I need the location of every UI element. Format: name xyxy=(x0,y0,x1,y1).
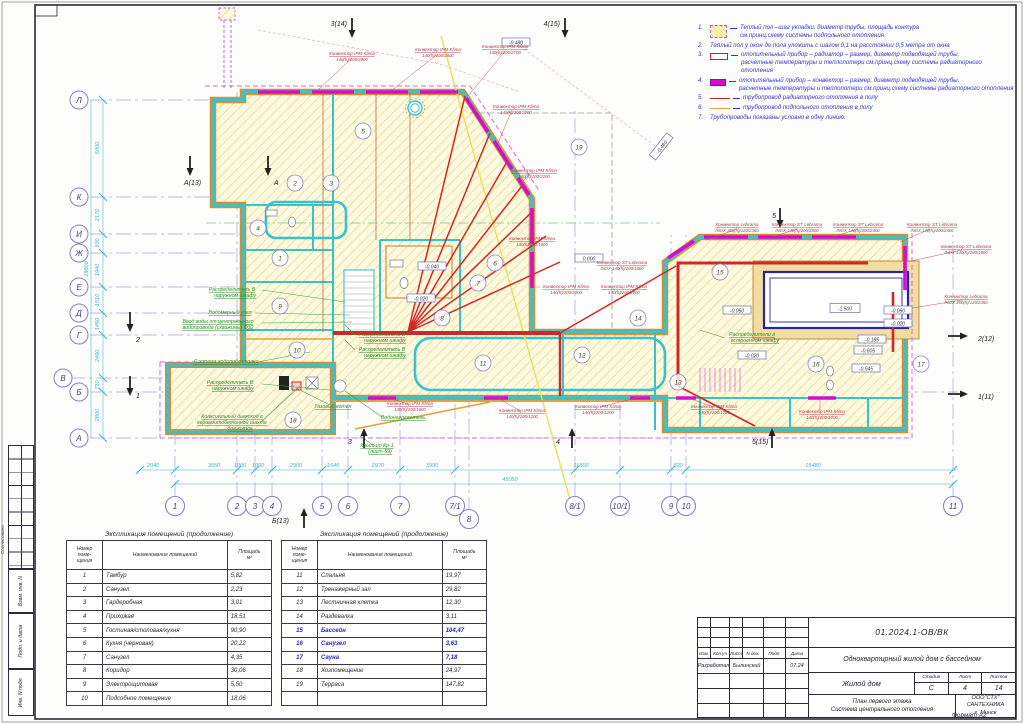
object-stage-row: Жилой дом Стадия С Лист 4 Листов 14 xyxy=(809,673,1015,695)
legend-text: отопительный прибор – радиатор – размер,… xyxy=(741,51,1014,74)
room-number: 7 xyxy=(476,281,480,288)
table-row-empty xyxy=(282,692,487,706)
dim-value: 820 xyxy=(673,463,683,469)
sheets-label: Листов xyxy=(982,673,1015,683)
annotation: керамзитобетонной шахте xyxy=(197,419,267,426)
section-label: 2(12) xyxy=(977,336,994,343)
sheet-label: Лист xyxy=(949,673,982,683)
signature-row xyxy=(698,674,808,689)
company-line2: САНТЕХНИКА xyxy=(967,702,1005,709)
room-number: 18 xyxy=(289,418,297,425)
signature-row: Разработал Былинский 07.24 xyxy=(698,659,808,674)
room-schedule-table-2: Экспликация помещений (продолжение) Номе… xyxy=(281,531,487,706)
convector-label: Конвектор IPM Klima xyxy=(482,44,528,49)
axis-label: А xyxy=(75,434,81,443)
dim-value: 1540 xyxy=(327,463,340,469)
side-stamp-repl-inv: Взам. инв. N xyxy=(8,569,34,613)
axis-label: Л xyxy=(75,96,82,105)
sheet-column: Лист 4 xyxy=(949,673,983,694)
gas-boiler-symbol xyxy=(279,376,289,390)
section-label: 1 xyxy=(136,393,140,400)
drawing-title-line2: Система центрального отопления xyxy=(831,706,933,714)
axis-label: 10 xyxy=(682,502,691,511)
legend-text: отопительный прибор – конвектор – размер… xyxy=(739,77,1013,93)
convector-label: Конвектор IPM Klima xyxy=(601,284,647,289)
dim-value: 3550 xyxy=(208,463,221,469)
dim-total: 19800 xyxy=(84,260,90,276)
section-label: А xyxy=(273,180,279,187)
convector-label: Конвектор IPM Klima xyxy=(509,236,555,241)
col-header: Площадь м² xyxy=(442,541,486,570)
section-label: 5(15) xyxy=(752,439,768,446)
axis-label: 7 xyxy=(398,502,403,511)
convector-label: Конвектор IPM Klima xyxy=(387,401,433,406)
dim-value: 3990 xyxy=(426,463,439,469)
room-number: 15 xyxy=(716,270,724,277)
axis-label: 8 xyxy=(467,515,472,524)
revision-row xyxy=(698,618,808,628)
legend-item: 4. отопительный прибор – конвектор – раз… xyxy=(698,77,1014,93)
elevation-value: -0.050 xyxy=(891,309,905,315)
revision-header-row: Изм. Кол.уч Лист N док. Подп. Дата xyxy=(698,648,808,659)
divider xyxy=(21,446,22,568)
room-number: 2 xyxy=(292,181,297,188)
convector-label: Конвектор ST Lebrama xyxy=(772,222,823,227)
elevation-value: -0.020 xyxy=(414,297,428,303)
col-header: Наименование помещений xyxy=(318,541,443,570)
legend-leader xyxy=(733,108,740,109)
elevation-value: -0.040 xyxy=(425,265,439,271)
room-number: 14 xyxy=(634,316,642,323)
signature-row xyxy=(698,689,808,704)
room-number: 4 xyxy=(256,226,260,233)
annotation: Коаксиальный дымоход в xyxy=(201,413,263,420)
convector-spec: 140(h)/200/1200 xyxy=(806,415,838,420)
legend-text: трубопровод подпольного отопления в полу xyxy=(743,104,873,112)
company-line1: ООО"СТХ" xyxy=(971,695,999,702)
table-row: 6Кухня (черновая)20,22 xyxy=(67,637,272,651)
legend-item: 5. трубопровод радиаторного отопления в … xyxy=(698,94,1014,102)
table-row: 8Коридор30,06 xyxy=(67,665,272,679)
drawing-sheet: 5800 2170 930 1940 1510 1450 2490 710 28… xyxy=(0,0,1024,724)
room-number: 8 xyxy=(440,316,444,323)
convector-label: Конвектор IPM Klima xyxy=(543,284,589,289)
convector-label: Конвектор IPM Klima xyxy=(799,409,845,414)
legend-number: 2. xyxy=(698,42,707,50)
legend-leader xyxy=(731,55,738,56)
convector-label: Конвектор IPM Klima xyxy=(575,404,621,409)
legend-number: 3. xyxy=(698,51,707,59)
sheets-column: Листов 14 xyxy=(982,673,1015,694)
convector-label: Конвектор ST Lebrama xyxy=(597,260,648,265)
convector-spec: 140(h)/200/1200 xyxy=(698,410,730,415)
room-number: 3 xyxy=(329,181,333,188)
convector-spec: INOX 140(h)/200/2400 xyxy=(910,228,954,233)
legend-number: 6. xyxy=(698,104,707,112)
floor-heating-swatch-icon xyxy=(710,25,727,38)
dim-value: 2170 xyxy=(95,208,101,222)
convector-label: Конвектор ST Lebrama xyxy=(833,222,884,227)
section-label: 3(14) xyxy=(331,21,347,28)
elevation-value: -0.020 xyxy=(891,322,905,328)
legend-item: 7. Трубопроводы показаны условно в одну … xyxy=(698,114,1014,122)
axis-label: 11 xyxy=(949,502,957,511)
section-label: 4 xyxy=(556,439,560,446)
notes-legend: 1. Теплый пол –шаг укладки, диаметр труб… xyxy=(698,24,1014,124)
radiator-swatch-icon xyxy=(710,53,728,60)
section-label: 5 xyxy=(772,213,776,220)
legend-text: Теплый пол у окон до пола уложить с шаго… xyxy=(710,42,950,50)
table-header-row: Номер поме- щения Наименование помещений… xyxy=(67,541,272,570)
elevation-value: -0.050 xyxy=(730,309,744,315)
dim-value: 1000 xyxy=(234,463,247,469)
annotation: Система водоподготовки xyxy=(194,359,259,365)
section-label: Б(13) xyxy=(272,518,289,525)
table-title: Экспликация помещений (продолжение) xyxy=(281,531,487,538)
table-row: 14Раздевалка3,11 xyxy=(282,610,487,624)
convector-spec: 140(h)/200/2000 xyxy=(608,290,640,295)
dim-total: 45050 xyxy=(502,477,518,483)
table-title: Экспликация помещений (продолжение) xyxy=(66,531,272,538)
table-row: 5Гостиная/столовая/кухня90,90 xyxy=(67,624,272,638)
col-label: Изм. xyxy=(698,648,711,659)
table-row: 18Хозпомещение24,97 xyxy=(282,665,487,679)
section-label: 4(15) xyxy=(544,21,560,28)
side-stamp-sign-date: Подп. и дата xyxy=(8,613,34,669)
stage-value: С xyxy=(915,683,948,694)
dim-value: 2970 xyxy=(371,463,385,469)
legend-number: 1. xyxy=(698,24,707,32)
legend-leader xyxy=(733,98,740,99)
dim-value: 1450 xyxy=(95,317,101,330)
room-number: 5 xyxy=(361,129,365,136)
annotation: наружном шкафу xyxy=(364,353,406,359)
table-row: 12Тренажерный зал29,82 xyxy=(282,583,487,597)
table-row: 13Лестничная клетка12,30 xyxy=(282,597,487,611)
annotation: встроенном шкафу xyxy=(731,338,780,344)
stage-column: Стадия С xyxy=(915,673,949,694)
axis-label: 2 xyxy=(234,502,240,511)
convector-label: Конвектор ST Lebrama xyxy=(907,222,958,227)
table-row: 19Терраса147,82 xyxy=(282,678,487,692)
legend-number: 7. xyxy=(698,114,707,122)
format-label: Формат А2 xyxy=(952,712,986,719)
axis-label: 7/1 xyxy=(449,502,460,511)
dim-value: 2900 xyxy=(289,463,303,469)
annotation: Водонагреватель xyxy=(381,415,426,421)
col-header: Наименование помещений xyxy=(103,541,228,570)
convector-spec: 140(h)/200/2200 xyxy=(518,174,550,179)
table-row: 9Электрощитовая5,50 xyxy=(67,678,272,692)
convector-spec: INOX 140(h)/200/1800 xyxy=(600,266,644,271)
room-number: 11 xyxy=(480,361,487,368)
revision-row xyxy=(698,628,808,638)
signature-row xyxy=(698,704,808,717)
section-label: 2 xyxy=(135,337,140,344)
revision-row xyxy=(698,638,808,648)
legend-number: 5. xyxy=(698,94,707,102)
section-label: 1(11) xyxy=(978,394,994,401)
stage-label: Стадия xyxy=(915,673,948,683)
side-stamp-inv-no: Инв. N подл. xyxy=(8,669,34,716)
convector-label: Конвектор ST Lebrama xyxy=(941,244,992,249)
dim-value: 1000 xyxy=(252,463,265,469)
radiator-pipe-swatch-icon xyxy=(710,98,730,99)
table-row: 11Спальня19,97 xyxy=(282,570,487,584)
convector-spec: 140(h)/200/1000 xyxy=(516,242,548,247)
axis-label: Д xyxy=(75,309,82,318)
room-schedule-table-1: Экспликация помещений (продолжение) Номе… xyxy=(66,531,272,706)
col-label: Кол.уч xyxy=(711,648,730,659)
col-header: Номер поме- щения xyxy=(282,541,318,570)
dim-value: 2800 xyxy=(95,408,101,422)
elevation-value: -0.605 xyxy=(861,349,875,355)
convector-swatch-icon xyxy=(710,79,726,86)
col-label: Подп. xyxy=(764,648,786,659)
drawing-title: План первого этажа Система центрального … xyxy=(809,695,956,717)
section-label: А(13) xyxy=(183,180,201,187)
annotation: наружном шкафу xyxy=(364,338,406,344)
legend-text: трубопровод радиаторного отопления в пол… xyxy=(743,94,878,102)
table-row: 1Тамбур5,82 xyxy=(67,570,272,584)
legend-leader xyxy=(730,28,737,29)
dim-value: 710 xyxy=(95,379,101,389)
section-label: 3 xyxy=(348,439,352,446)
elevation-value: -0.020 xyxy=(745,354,759,360)
elevation-value: -0.945 xyxy=(859,367,873,373)
project-title: Одноквартирный жилой дом с бассейном xyxy=(809,648,1015,674)
table-row: 15Бассейн104,47 xyxy=(282,624,487,638)
title-block-main: 01.2024.1-ОВ/ВК Одноквартирный жилой дом… xyxy=(809,618,1015,717)
legend-item: 3. отопительный прибор – радиатор – разм… xyxy=(698,51,1014,74)
col-header: Площадь м² xyxy=(227,541,271,570)
annotation: (лист 59) xyxy=(368,449,392,455)
legend-leader xyxy=(729,81,736,82)
axis-label: Е xyxy=(76,283,82,292)
col-header: Номер поме- щения xyxy=(67,541,103,570)
role-label: Разработал xyxy=(698,659,730,674)
document-number: 01.2024.1-ОВ/ВК xyxy=(809,618,1015,648)
legend-text: Трубопроводы показаны условно в одну лин… xyxy=(710,114,845,122)
dim-value: 2490 xyxy=(95,349,101,363)
convector-spec: 140(h)/200/1200 xyxy=(582,410,614,415)
room-number: 6 xyxy=(493,261,497,268)
sheets-value: 14 xyxy=(982,683,1015,694)
convector-label: Конвектор IPM Klima xyxy=(493,104,539,109)
dim-value: 11800 xyxy=(573,463,589,469)
dim-value: 5800 xyxy=(95,141,101,154)
elevation-value: 0.000 xyxy=(583,257,596,263)
convector-spec: 140(h)/200/2700 xyxy=(500,110,532,115)
room-number: 13 xyxy=(674,380,682,387)
table-header-row: Номер поме- щения Наименование помещений… xyxy=(282,541,487,570)
room-number: 17 xyxy=(917,362,925,369)
table-row: 3Гардеробная3,01 xyxy=(67,597,272,611)
col-label: N док. xyxy=(743,648,764,659)
legend-number: 4. xyxy=(698,77,707,85)
convector-label: Конвектор IPM Klima xyxy=(499,408,545,413)
axis-label: 3 xyxy=(253,502,258,511)
convector-label: Конвектор IPM Klima xyxy=(691,404,737,409)
convector-spec: 140(h)/200/1200 xyxy=(506,414,538,419)
convector-spec: INOX 350(h)/120/2350 xyxy=(944,300,988,305)
elevation-value: -0.185 xyxy=(865,338,879,344)
axis-label: 8/1 xyxy=(569,502,580,511)
axis-label: И xyxy=(76,230,82,239)
title-block-revision-grid: Изм. Кол.уч Лист N док. Подп. Дата Разра… xyxy=(698,618,809,717)
convector-label: Конвектор Lebrama xyxy=(715,222,759,227)
room-number: 19 xyxy=(575,145,583,152)
floor-pipe-swatch-icon xyxy=(710,108,730,109)
axis-label: 5 xyxy=(320,502,325,511)
room-number: 9 xyxy=(278,304,282,311)
annotation: водопровода (скважины) Ф32 xyxy=(183,325,254,331)
dim-value: 15480 xyxy=(805,463,821,469)
legend-item: 1. Теплый пол –шаг укладки, диаметр труб… xyxy=(698,24,1014,40)
convector-spec: INOX 140(h)/200/2400 xyxy=(836,228,880,233)
room-number: 1 xyxy=(278,256,282,263)
room-number: 12 xyxy=(578,353,586,360)
table-row: 17Сауна7,18 xyxy=(282,651,487,665)
convector-spec: 140(h)/200/2700 xyxy=(489,50,521,55)
dim-value: 1940 xyxy=(95,263,101,276)
convector-spec: 140(h)/200/2800 xyxy=(422,53,454,58)
object-name: Жилой дом xyxy=(809,673,915,694)
dim-value: 930 xyxy=(95,237,101,247)
legend-item: 2. Теплый пол у окон до пола уложить с ш… xyxy=(698,42,1014,50)
axis-label: 4 xyxy=(270,502,275,511)
axis-label: Б xyxy=(76,388,81,397)
side-stamp-grid xyxy=(8,445,34,569)
convector-label: Конвектор IPM Klima xyxy=(329,51,375,56)
annotation: для котла xyxy=(227,426,252,432)
table-row: 4Прихожая18,51 xyxy=(67,610,272,624)
convector-spec: INOX 140(h)/200/1500 xyxy=(944,250,988,255)
legend-item: 6. трубопровод подпольного отопления в п… xyxy=(698,104,1014,112)
axis-label: Г xyxy=(77,331,82,340)
convector-spec: INOX 350(h)/120/2350 xyxy=(715,228,759,233)
axis-label: Ж xyxy=(74,249,83,258)
table-row: 10Подсобное помещение18,06 xyxy=(67,692,272,706)
axis-label: 1 xyxy=(173,502,177,511)
annotation: Водомерный узел xyxy=(208,309,251,316)
annotation: наружном шкафу xyxy=(212,386,254,392)
convector-label: Конвектор IPM Klima xyxy=(511,168,557,173)
room-number: 16 xyxy=(812,362,820,369)
col-label: Лист xyxy=(730,648,743,659)
convector-spec: 140(h)/200/1600 xyxy=(394,407,426,412)
axis-label: 6 xyxy=(346,502,351,511)
drawing-title-line1: План первого этажа xyxy=(853,698,912,706)
table-row: 2Санузел2,23 xyxy=(67,583,272,597)
convector-spec: INOX 140(h)/200/2800 xyxy=(775,228,819,233)
signature-cell xyxy=(764,659,786,674)
legend-text: Теплый пол –шаг укладки, диаметр трубы, … xyxy=(740,24,919,40)
person-name: Былинский xyxy=(730,659,764,674)
annotation: Газовый котел xyxy=(315,403,352,410)
dim-value: 1510 xyxy=(95,293,101,306)
title-block: Изм. Кол.уч Лист N док. Подп. Дата Разра… xyxy=(697,617,1016,718)
convector-label: Конвектор Lebrama xyxy=(944,294,988,299)
axis-label: 10/1 xyxy=(612,502,628,511)
annotation: наружном шкафу xyxy=(214,293,256,299)
elevation-value: -1.500 xyxy=(838,307,852,313)
col-label: Дата xyxy=(786,648,808,659)
axis-label: В xyxy=(60,374,66,383)
axis-label: 9 xyxy=(669,502,674,511)
room-number: 10 xyxy=(293,348,301,355)
table-row: 16Санузел3,63 xyxy=(282,637,487,651)
table-row: 7Санузел4,35 xyxy=(67,651,272,665)
convector-label: Конвектор IPM Klima xyxy=(415,47,461,52)
convector-spec: 140(h)/200/2800 xyxy=(336,57,368,62)
date-cell: 07.24 xyxy=(786,659,808,674)
convector-spec: 140(h)/200/2000 xyxy=(550,290,582,295)
sheet-value: 4 xyxy=(949,683,982,694)
dim-value: 2040 xyxy=(146,463,160,469)
